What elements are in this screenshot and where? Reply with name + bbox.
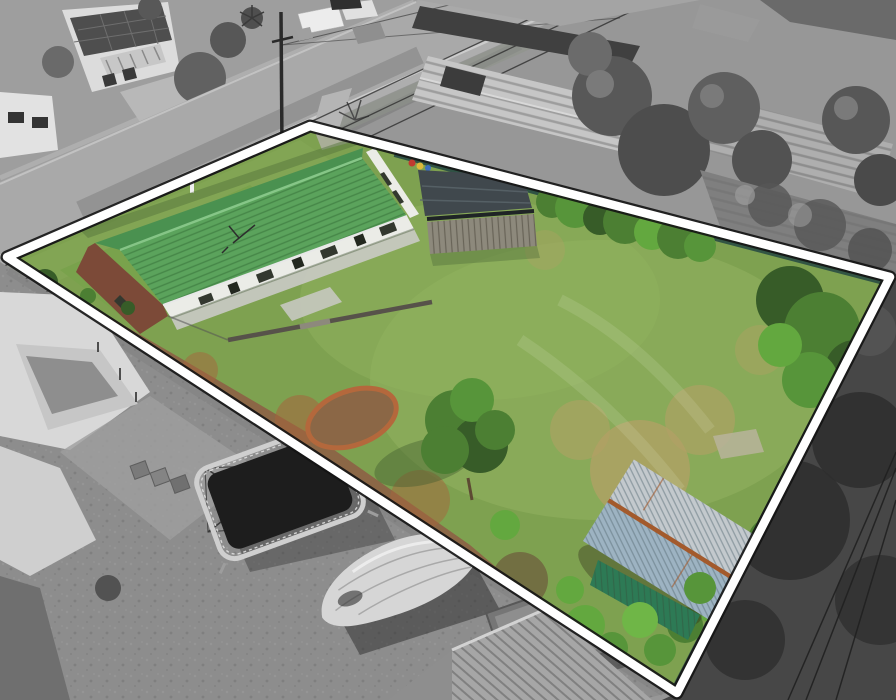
- house-walls: [0, 92, 58, 158]
- neighbor-house-left: [0, 92, 58, 158]
- window: [8, 112, 24, 123]
- aerial-photo-canvas: [0, 0, 896, 700]
- corner-bush: [121, 301, 135, 315]
- small-tree: [490, 510, 520, 540]
- window: [32, 117, 48, 128]
- toy-blue: [425, 165, 431, 171]
- gray-tree: [42, 46, 74, 78]
- gray-tree: [210, 22, 246, 58]
- aerial-photo: [0, 0, 896, 700]
- gray-shrub: [95, 575, 121, 601]
- toy-red: [409, 160, 416, 167]
- toy-yellow: [417, 163, 424, 170]
